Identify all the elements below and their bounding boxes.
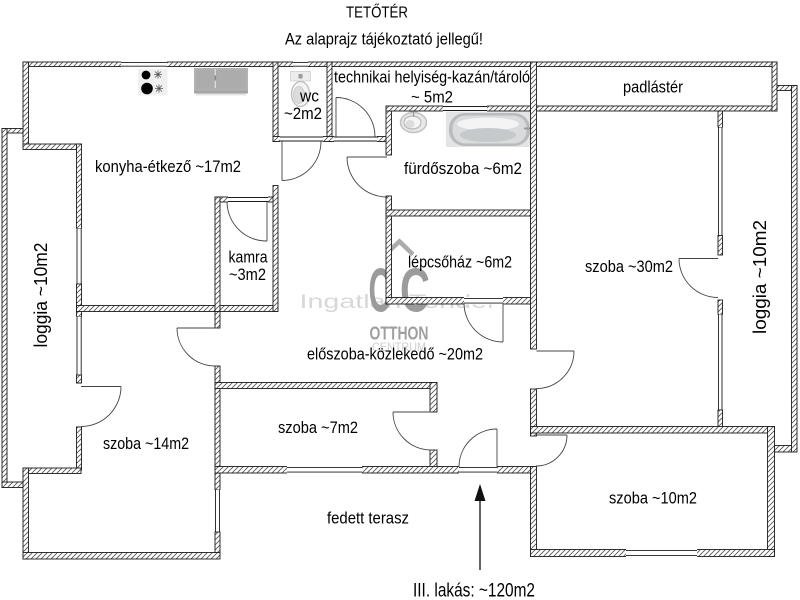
svg-text:III. lakás: ~120m2: III. lakás: ~120m2: [413, 581, 535, 600]
svg-text:~ 5m2: ~ 5m2: [411, 88, 453, 107]
svg-text:loggia ~10m2: loggia ~10m2: [749, 220, 770, 334]
svg-text:wc: wc: [299, 87, 319, 106]
svg-text:előszoba-közlekedő ~20m2: előszoba-közlekedő ~20m2: [307, 345, 483, 364]
svg-text:szoba ~10m2: szoba ~10m2: [609, 489, 697, 508]
svg-text:konyha-étkező ~17m2: konyha-étkező ~17m2: [95, 157, 241, 176]
svg-text:~2m2: ~2m2: [284, 104, 322, 123]
svg-text:~3m2: ~3m2: [229, 265, 266, 284]
svg-text:loggia ~10m2: loggia ~10m2: [30, 243, 51, 348]
svg-text:Az alaprajz tájékoztató jelleg: Az alaprajz tájékoztató jellegű!: [285, 30, 483, 49]
svg-text:szoba ~7m2: szoba ~7m2: [278, 418, 358, 437]
svg-text:technikai helyiség-kazán/tárol: technikai helyiség-kazán/tároló: [334, 68, 530, 87]
svg-text:fedett terasz: fedett terasz: [327, 509, 409, 528]
svg-text:fürdőszoba ~6m2: fürdőszoba ~6m2: [404, 159, 522, 178]
svg-text:szoba ~14m2: szoba ~14m2: [103, 434, 189, 453]
svg-text:lépcsőház ~6m2: lépcsőház ~6m2: [408, 253, 512, 272]
svg-text:TETŐTÉR: TETŐTÉR: [346, 3, 408, 22]
svg-text:szoba ~30m2: szoba ~30m2: [585, 257, 673, 276]
svg-text:padlástér: padlástér: [623, 78, 683, 97]
svg-text:kamra: kamra: [229, 248, 268, 267]
